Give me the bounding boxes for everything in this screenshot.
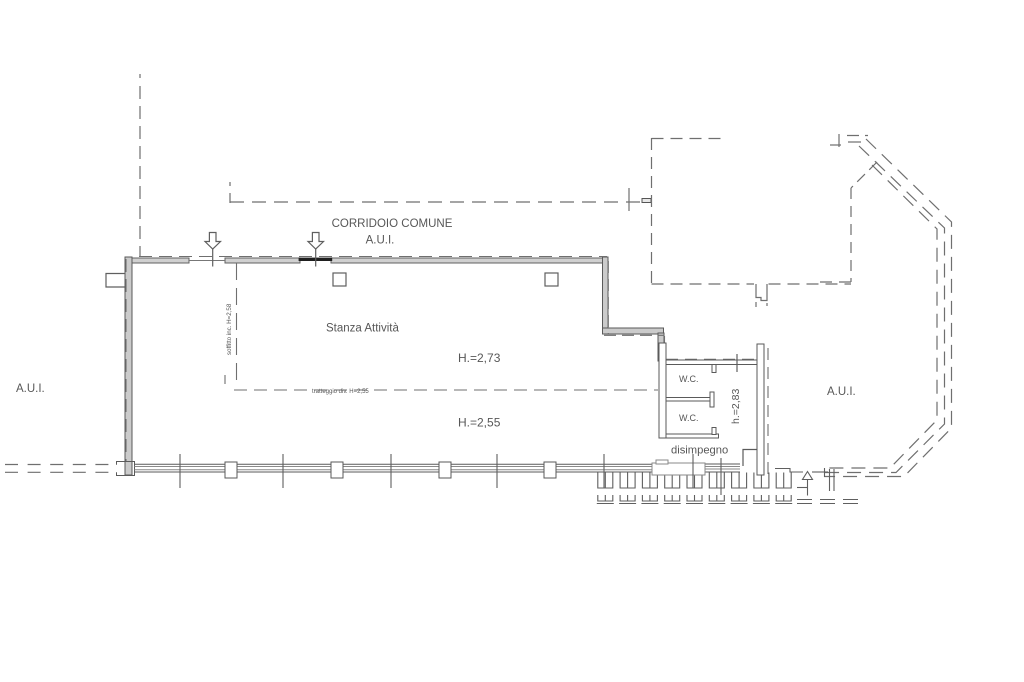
svg-text:A.U.I.: A.U.I. bbox=[366, 235, 395, 247]
svg-text:disimpegno: disimpegno bbox=[671, 445, 728, 457]
svg-text:A.U.I.: A.U.I. bbox=[827, 386, 856, 398]
svg-text:A.U.I.: A.U.I. bbox=[16, 383, 45, 395]
svg-text:CORRIDOIO COMUNE: CORRIDOIO COMUNE bbox=[332, 218, 453, 230]
svg-text:H.=2,73: H.=2,73 bbox=[458, 351, 501, 365]
svg-text:Stanza Attività: Stanza Attività bbox=[326, 323, 399, 335]
svg-text:W.C.: W.C. bbox=[679, 374, 699, 384]
svg-text:h.=2,83: h.=2,83 bbox=[730, 389, 742, 424]
svg-text:W.C.: W.C. bbox=[679, 413, 699, 423]
svg-text:soffitto inc. H=2,58: soffitto inc. H=2,58 bbox=[226, 303, 233, 355]
svg-text:tratteggio div. H=2,55: tratteggio div. H=2,55 bbox=[312, 389, 369, 395]
svg-text:H.=2,55: H.=2,55 bbox=[458, 416, 501, 430]
